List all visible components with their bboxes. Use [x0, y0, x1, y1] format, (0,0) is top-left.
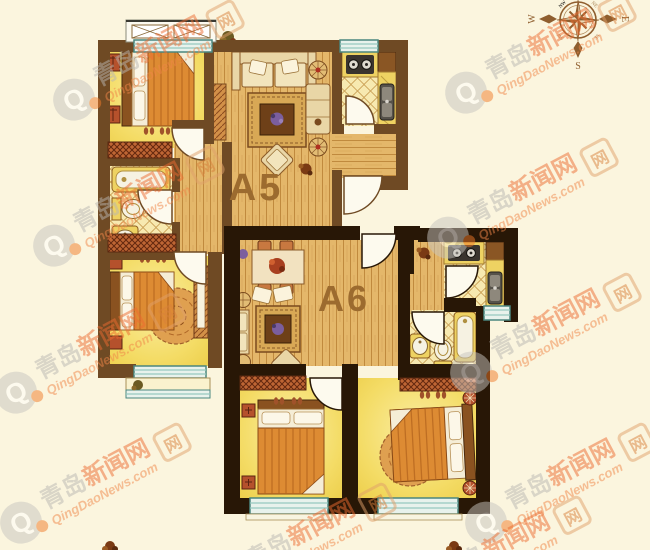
- window-icon: [340, 40, 378, 52]
- plant-icon: [446, 541, 462, 550]
- unit-label-a6: A6: [318, 278, 370, 319]
- compass-southeast-label: SE: [592, 32, 600, 40]
- kitchen-stove-icon: [342, 52, 378, 77]
- compass-east-label: E: [619, 16, 630, 22]
- plant-icon: [102, 541, 118, 550]
- kitchen-cabinet-icon: [378, 52, 396, 72]
- unit-label-a5: A5: [229, 167, 284, 209]
- compass-south-arrow: [574, 41, 583, 58]
- closet-icon: [108, 142, 172, 158]
- kitchen-stove-icon: [444, 242, 484, 264]
- door-a5-entry: [344, 176, 382, 214]
- compass-east-arrow: [599, 15, 617, 24]
- window-icon: [134, 366, 206, 378]
- coffee-table-icon: [248, 93, 306, 147]
- compass-south-label: S: [575, 61, 581, 72]
- floorplan-page: A5 A6 W E S NW NE SW SE Q 青岛新闻网QingDaoNe…: [0, 0, 650, 550]
- window-icon: [374, 498, 462, 520]
- side-table-icon: [309, 61, 327, 79]
- closet-icon: [108, 234, 176, 252]
- window-icon: [246, 498, 332, 520]
- kitchen-sink-icon: [380, 84, 394, 120]
- wardrobe-icon: [400, 378, 476, 391]
- bathtub-icon: [112, 167, 170, 192]
- compass-west-arrow: [539, 15, 557, 24]
- balcony-top: [126, 20, 216, 42]
- bathtub-icon: [454, 312, 476, 362]
- compass-rose: W E S NW NE SW SE: [527, 0, 630, 72]
- cabinet-icon: [212, 84, 226, 140]
- compass-northwest-label: NW: [558, 0, 568, 10]
- floor-plan-svg: A5 A6 W E S NW NE SW SE: [0, 0, 650, 550]
- side-table-icon: [309, 138, 327, 156]
- kitchen-cabinet-icon: [486, 242, 504, 260]
- wardrobe-icon: [240, 376, 306, 390]
- window-icon: [484, 306, 510, 320]
- bed-icon: [390, 404, 476, 484]
- balcony-bottom: [126, 378, 210, 398]
- a5-corridor-floor: [174, 144, 222, 254]
- compass-west-label: W: [527, 14, 538, 24]
- window-icon: [134, 40, 212, 52]
- kitchen-sink-icon: [488, 272, 502, 304]
- chaise-icon: [306, 84, 330, 134]
